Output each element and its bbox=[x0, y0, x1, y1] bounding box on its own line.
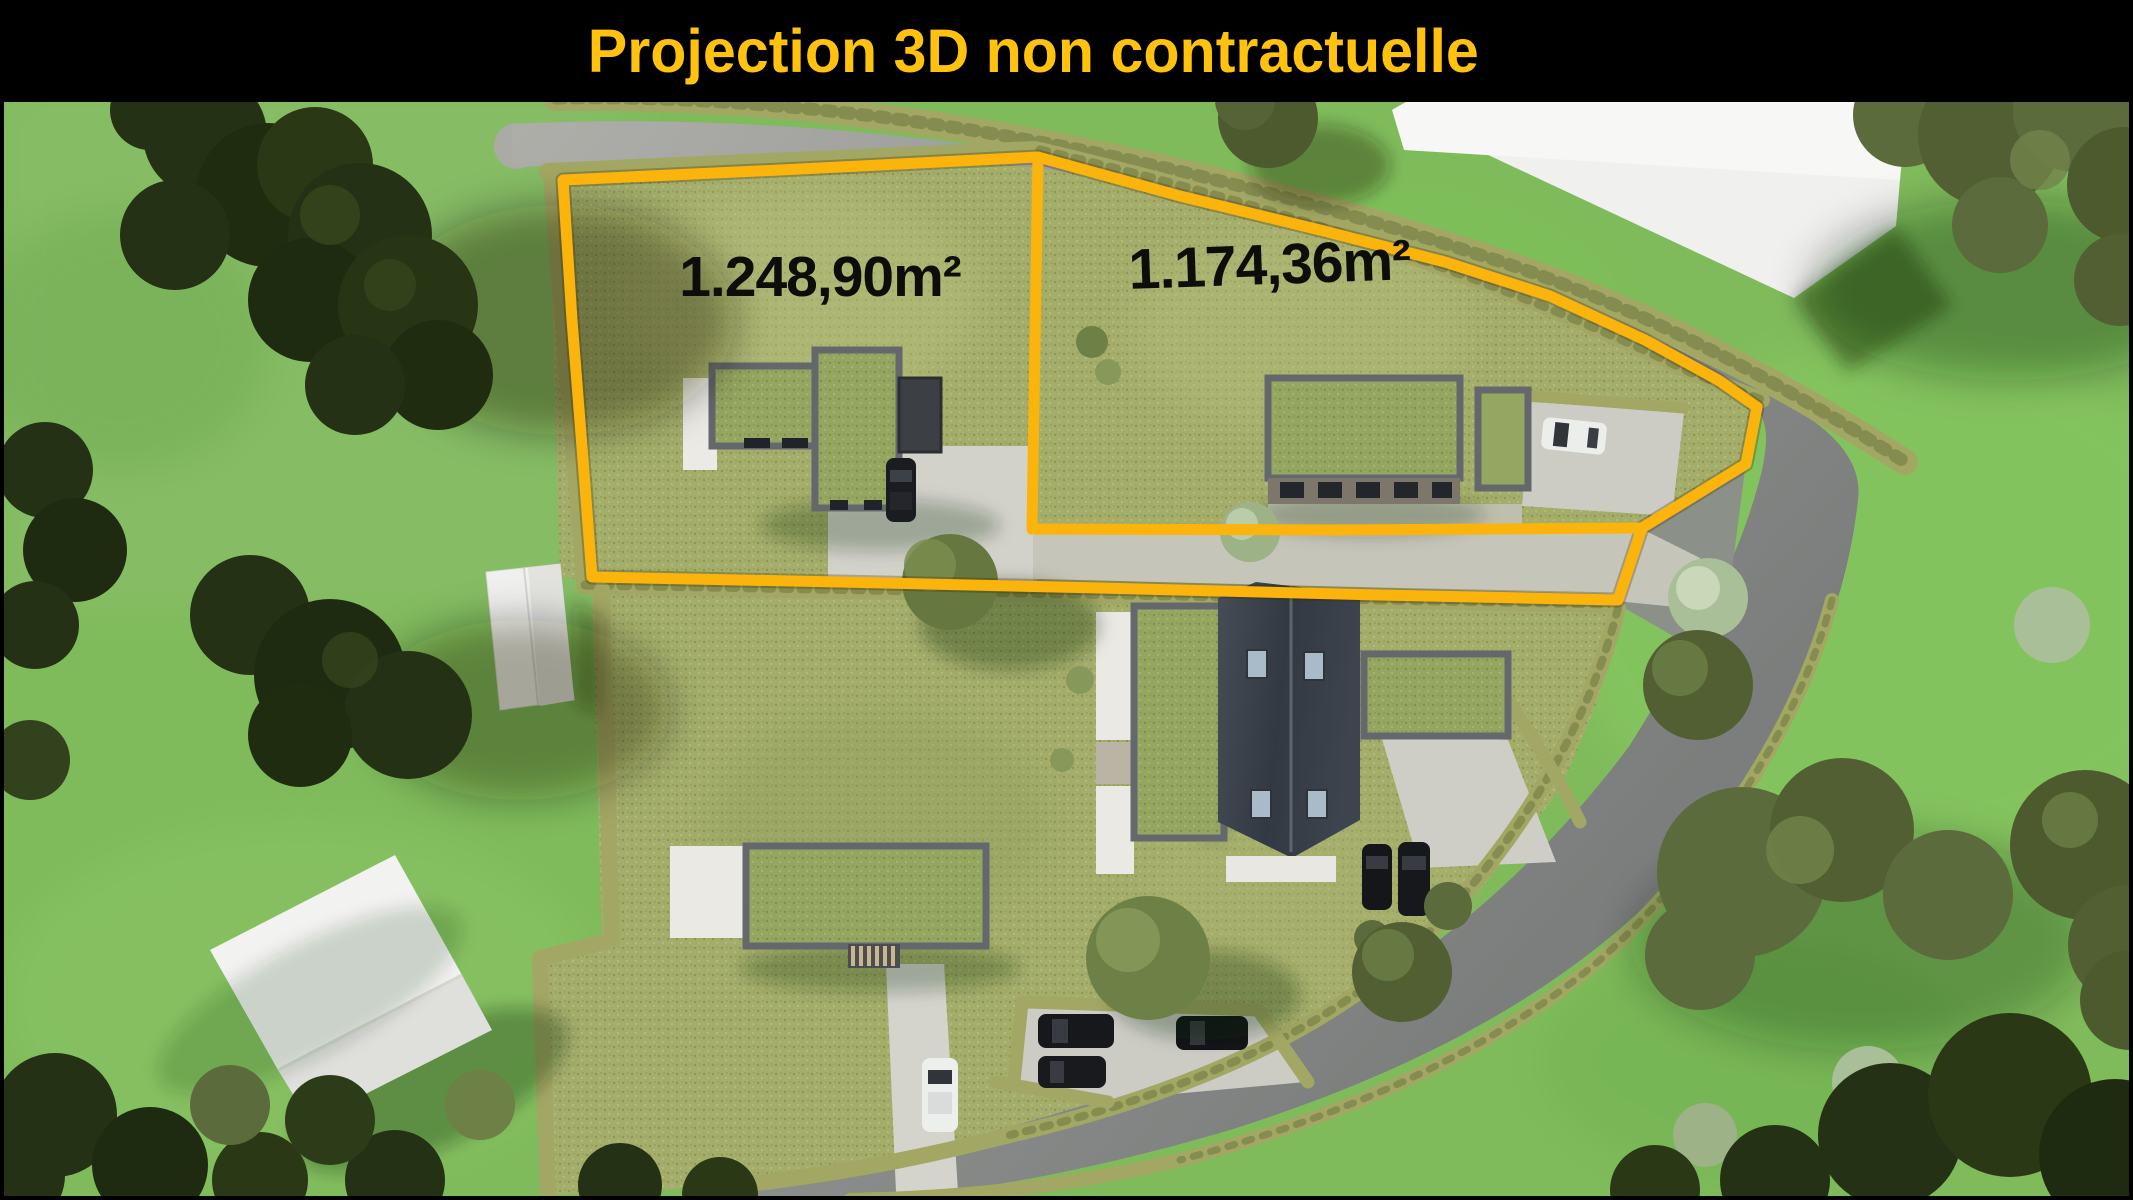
dark-pitched-roof bbox=[1218, 582, 1360, 858]
disclaimer-banner: Projection 3D non contractuelle bbox=[0, 0, 2133, 102]
existing-house-patio-1 bbox=[1096, 612, 1134, 740]
carport-roof bbox=[899, 378, 941, 452]
car-black-left-parcel bbox=[886, 458, 916, 522]
car-white-right-parcel bbox=[1541, 417, 1608, 456]
projection-3d-image: 1.248,90m² 1.174,36m² Projection 3D non … bbox=[0, 0, 2133, 1200]
garage-patio bbox=[670, 846, 748, 938]
banner-title: Projection 3D non contractuelle bbox=[588, 16, 1479, 86]
parcel-right-area-label: 1.174,36m² bbox=[1128, 228, 1412, 302]
car-dark-3 bbox=[1038, 1014, 1114, 1048]
existing-house-gravel bbox=[1096, 742, 1134, 784]
aerial-scene: 1.248,90m² 1.174,36m² bbox=[0, 0, 2133, 1200]
existing-house-patio-2 bbox=[1096, 786, 1134, 874]
car-dark-1 bbox=[1362, 844, 1392, 910]
parcel-right-bottom-line bbox=[1032, 528, 1642, 530]
parcel-divider-line bbox=[1032, 157, 1038, 529]
car-white-garage-drive bbox=[922, 1058, 958, 1132]
parcel-left-area-label: 1.248,90m² bbox=[679, 245, 961, 309]
pergola bbox=[848, 944, 900, 968]
car-dark-5 bbox=[1038, 1056, 1106, 1088]
